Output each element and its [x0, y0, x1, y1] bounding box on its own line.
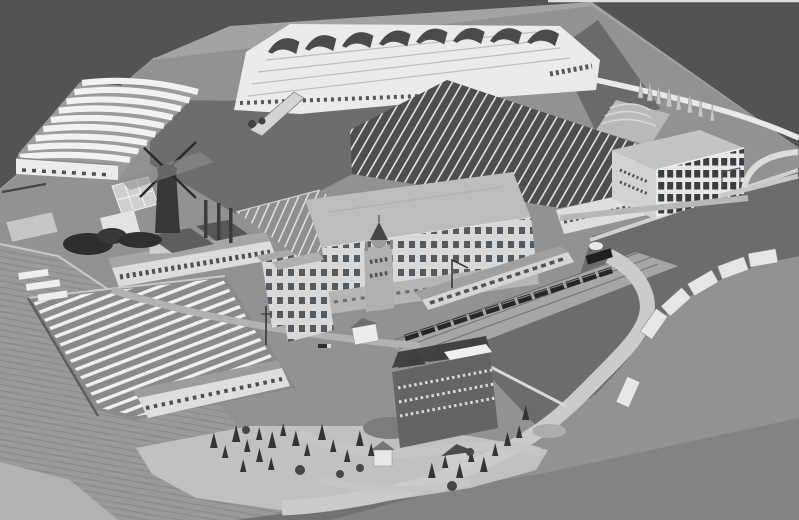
steam-puff	[589, 242, 603, 250]
storage-tank	[248, 120, 256, 128]
villa	[392, 336, 498, 448]
lawn-circle-light	[532, 424, 566, 438]
truck	[318, 344, 327, 348]
windmill-shadow	[118, 232, 162, 248]
model-photo-canvas	[0, 0, 799, 520]
photograph	[0, 0, 799, 520]
storage-tank	[259, 118, 266, 125]
